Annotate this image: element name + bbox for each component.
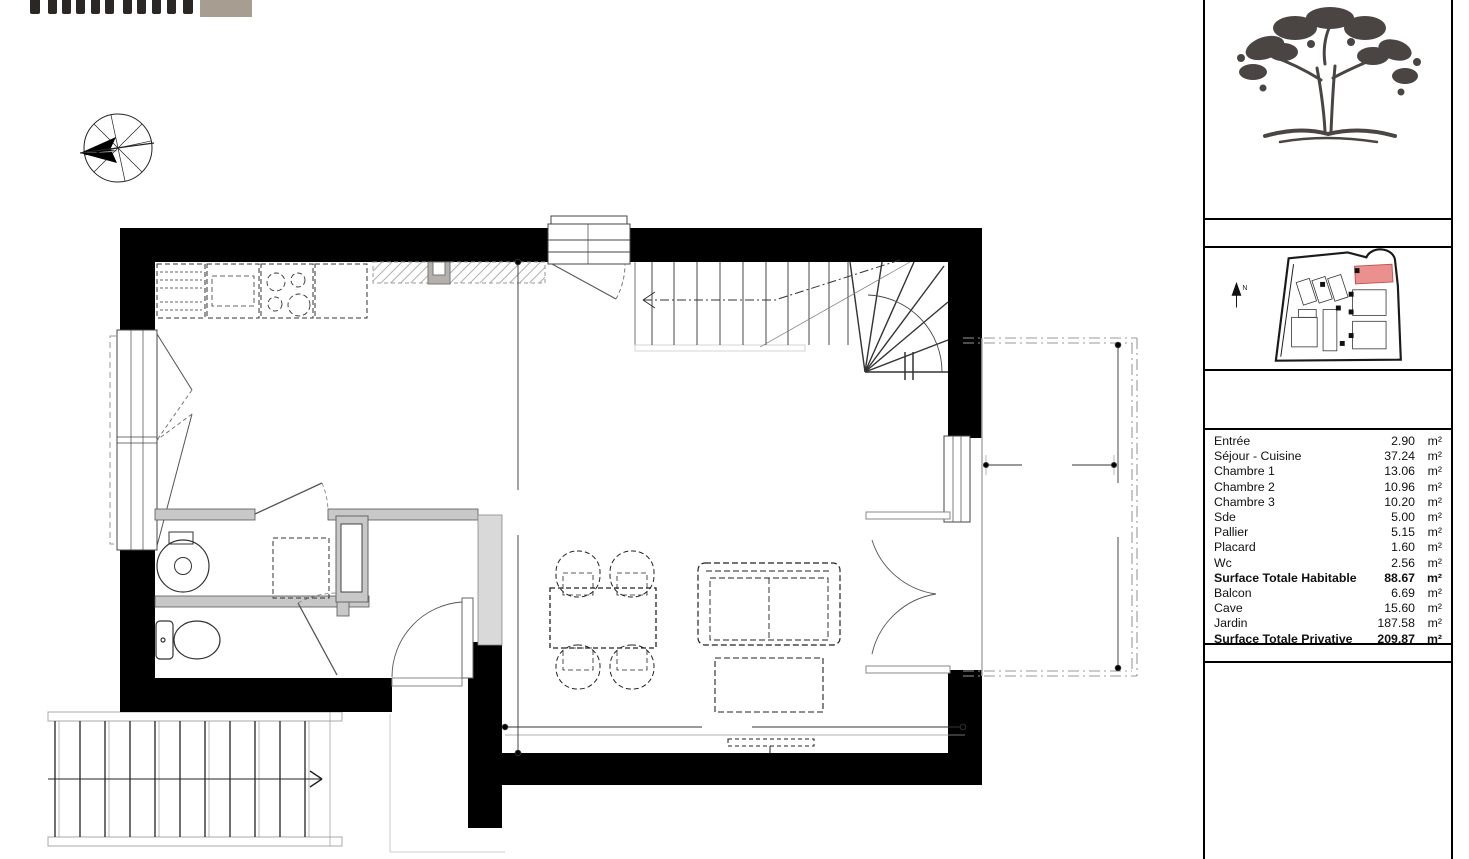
area-label: Pallier (1214, 525, 1367, 540)
area-label: Chambre 2 (1214, 480, 1367, 495)
area-label: Surface Totale Habitable (1214, 571, 1367, 586)
highlighted-unit (1355, 264, 1393, 284)
area-value: 88.67 (1367, 571, 1415, 586)
area-label: Jardin (1214, 616, 1367, 631)
toilet (156, 621, 220, 659)
right-window (944, 436, 970, 522)
area-value: 6.69 (1367, 586, 1415, 601)
soffit-strip (373, 262, 545, 284)
unit-info-box (1205, 371, 1451, 430)
top-window (548, 216, 630, 299)
area-unit: m² (1415, 601, 1442, 616)
svg-text:N: N (1242, 285, 1247, 292)
area-label: Wc (1214, 556, 1367, 571)
legend-title (1205, 645, 1451, 663)
entrance-door (392, 598, 473, 686)
cooktop-box (261, 264, 313, 318)
dining-table (550, 588, 656, 648)
area-label: Sde (1214, 510, 1367, 525)
area-value: 10.20 (1367, 495, 1415, 510)
placard-fixtures (157, 532, 329, 598)
area-row: Wc2.56m² (1205, 556, 1451, 571)
kitchen-counter (157, 264, 367, 318)
project-logo-box (1205, 0, 1451, 220)
area-unit: m² (1415, 525, 1442, 540)
area-unit: m² (1415, 540, 1442, 555)
fridge-box (315, 264, 367, 318)
burner (291, 273, 305, 287)
tv-unit (728, 739, 814, 753)
area-unit: m² (1415, 495, 1442, 510)
area-value: 15.60 (1367, 601, 1415, 616)
area-unit: m² (1415, 586, 1442, 601)
area-value: 10.96 (1367, 480, 1415, 495)
floor-plan (0, 0, 1200, 859)
balcony (963, 338, 1137, 676)
area-label: Chambre 1 (1214, 464, 1367, 479)
legend-box (1205, 645, 1451, 669)
area-label: Entrée (1214, 434, 1367, 449)
chair-seat (617, 573, 647, 595)
burner (288, 294, 310, 316)
area-value: 37.24 (1367, 449, 1415, 464)
area-value: 13.06 (1367, 464, 1415, 479)
coffee-table (715, 658, 823, 712)
info-panel: N Entrée2.90m²Séjour - Cuisine37.24m²Cha… (1203, 0, 1453, 859)
dining-set (550, 551, 656, 689)
burner (268, 297, 282, 311)
area-row: Chambre 113.06m² (1205, 464, 1451, 479)
washing-machine-box (273, 538, 329, 598)
area-value: 5.15 (1367, 525, 1415, 540)
area-unit: m² (1415, 556, 1442, 571)
area-unit: m² (1415, 616, 1442, 631)
legend-rows (1205, 663, 1451, 669)
chair (610, 551, 654, 597)
exterior-stair (48, 712, 505, 852)
area-unit: m² (1415, 449, 1442, 464)
area-row: Placard1.60m² (1205, 540, 1451, 555)
sofa (698, 563, 840, 645)
chair (556, 551, 600, 597)
sink-box (207, 264, 259, 318)
site-plan-box: N (1205, 248, 1451, 371)
areas-table: Entrée2.90m²Séjour - Cuisine37.24m²Chamb… (1205, 430, 1451, 645)
area-row: Chambre 310.20m² (1205, 495, 1451, 510)
chair-seat (563, 573, 593, 595)
area-unit: m² (1415, 464, 1442, 479)
area-value: 1.60 (1367, 540, 1415, 555)
area-value: 5.00 (1367, 510, 1415, 525)
balcony-door (866, 512, 950, 673)
area-label: Cave (1214, 601, 1367, 616)
compass-rose (80, 114, 154, 182)
interior-stair (635, 260, 948, 380)
area-row: Jardin187.58m² (1205, 616, 1451, 631)
chair-seat (617, 648, 647, 670)
area-row: Pallier5.15m² (1205, 525, 1451, 540)
area-value: 2.56 (1367, 556, 1415, 571)
placard-door (255, 483, 328, 514)
sink-basin (212, 276, 254, 306)
area-value: 187.58 (1367, 616, 1415, 631)
water-heater (157, 540, 209, 592)
area-unit: m² (1415, 480, 1442, 495)
site-plan-thumbnail: N (1205, 248, 1451, 369)
area-unit: m² (1415, 571, 1442, 586)
area-unit: m² (1415, 510, 1442, 525)
area-row: Surface Totale Habitable88.67m² (1205, 571, 1451, 586)
etel-closet (336, 516, 368, 602)
area-label: Séjour - Cuisine (1214, 449, 1367, 464)
burner (267, 273, 285, 291)
area-row: Cave15.60m² (1205, 601, 1451, 616)
area-row: Sde5.00m² (1205, 510, 1451, 525)
area-row: Balcon6.69m² (1205, 586, 1451, 601)
area-label: Chambre 3 (1214, 495, 1367, 510)
north-arrow: N (1232, 282, 1248, 308)
area-row: Chambre 210.96m² (1205, 480, 1451, 495)
dishwasher-hatch (160, 272, 202, 310)
area-label: Placard (1214, 540, 1367, 555)
area-value: 2.90 (1367, 434, 1415, 449)
area-unit: m² (1415, 434, 1442, 449)
carob-tree-logo (1205, 0, 1451, 150)
plan-title (1205, 220, 1451, 248)
area-row: Séjour - Cuisine37.24m² (1205, 449, 1451, 464)
chair-seat (563, 648, 593, 670)
area-label: Balcon (1214, 586, 1367, 601)
area-row: Entrée2.90m² (1205, 434, 1451, 449)
